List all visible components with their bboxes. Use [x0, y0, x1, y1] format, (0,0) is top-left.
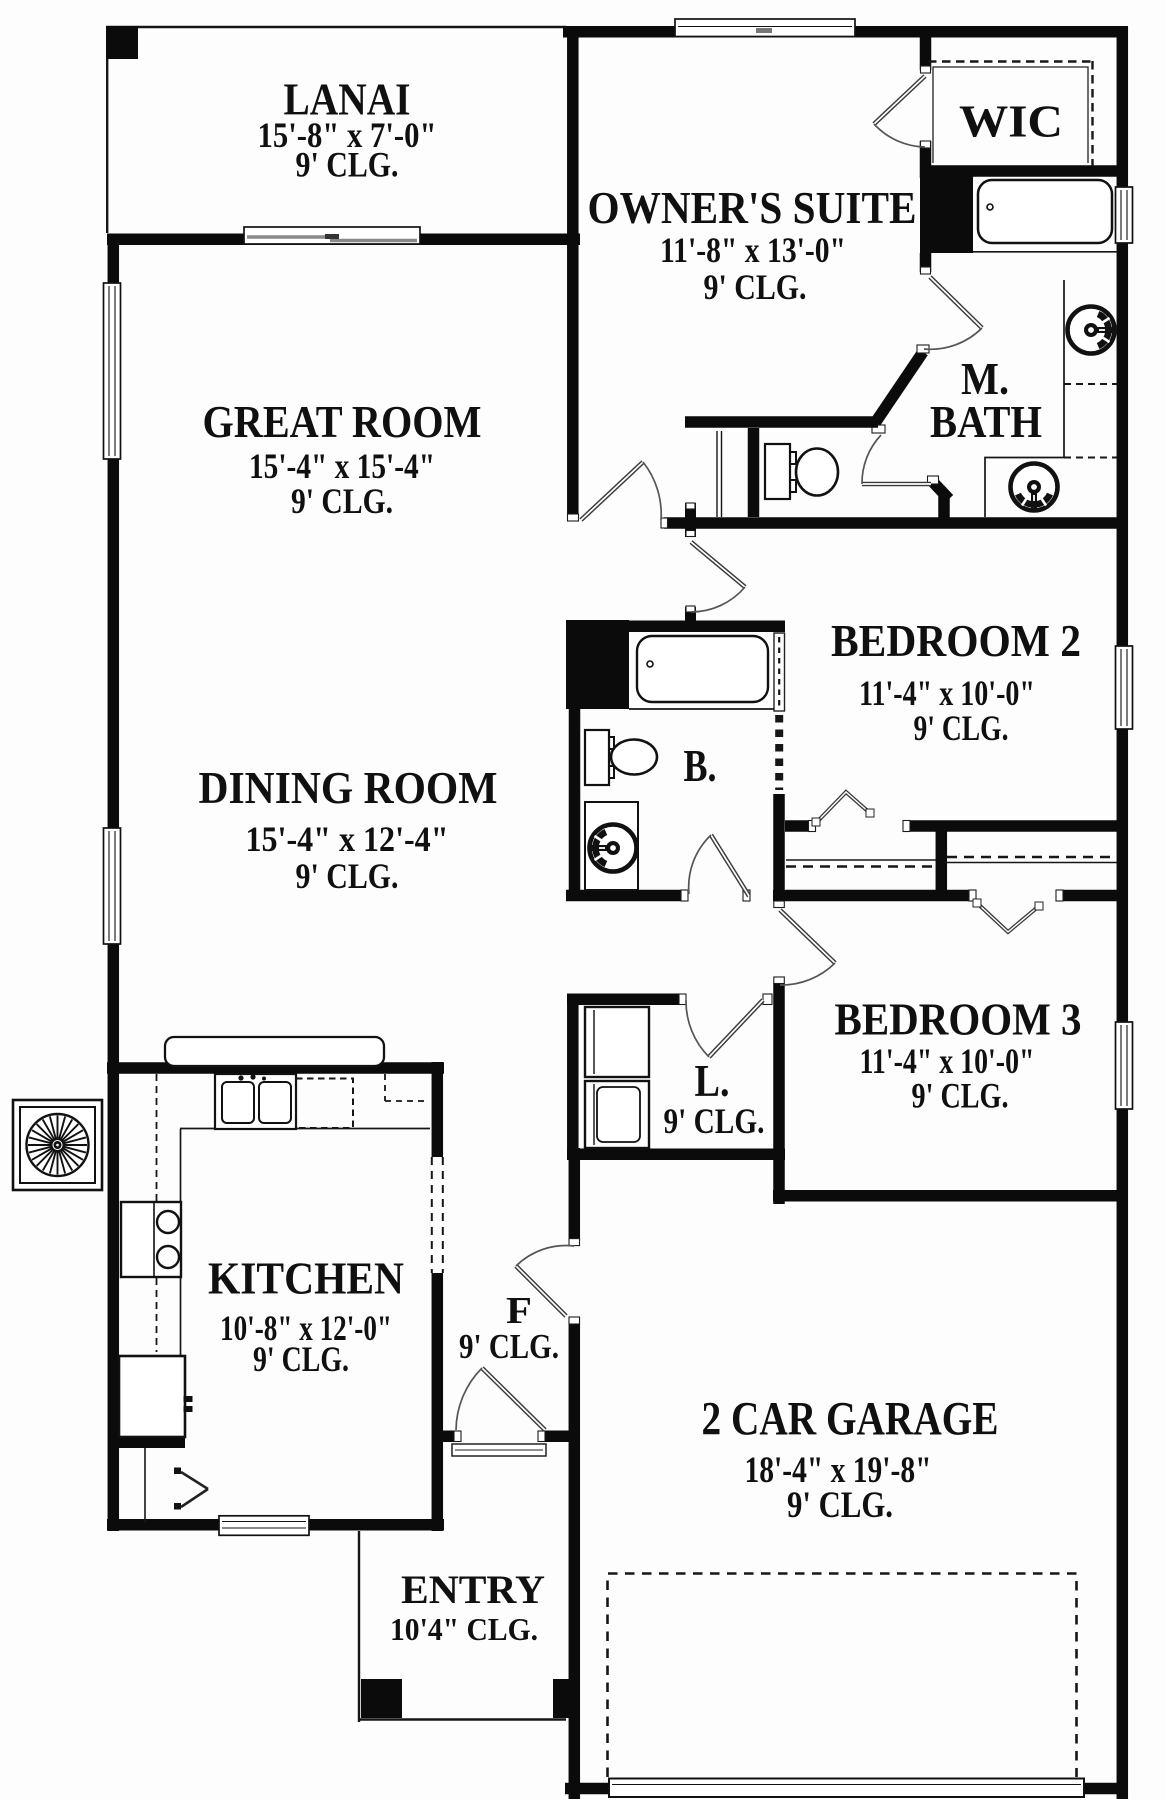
svg-text:9' CLG.: 9' CLG. — [914, 708, 1009, 748]
svg-text:BEDROOM 3: BEDROOM 3 — [835, 994, 1082, 1045]
svg-text:9' CLG.: 9' CLG. — [704, 267, 807, 307]
svg-text:9' CLG.: 9' CLG. — [787, 1485, 893, 1526]
svg-text:10'4" CLG.: 10'4" CLG. — [390, 1611, 538, 1647]
svg-text:9' CLG.: 9' CLG. — [664, 1101, 765, 1141]
svg-text:9' CLG.: 9' CLG. — [291, 481, 393, 521]
svg-text:15'-4" x 15'-4": 15'-4" x 15'-4" — [249, 446, 435, 486]
svg-text:DINING ROOM: DINING ROOM — [199, 762, 498, 813]
svg-text:B.: B. — [684, 740, 717, 791]
svg-text:BEDROOM 2: BEDROOM 2 — [831, 615, 1081, 666]
svg-text:KITCHEN: KITCHEN — [208, 1253, 404, 1304]
svg-text:2 CAR GARAGE: 2 CAR GARAGE — [702, 1393, 999, 1446]
svg-text:15'-4" x 12'-4": 15'-4" x 12'-4" — [246, 819, 449, 859]
svg-text:ENTRY: ENTRY — [401, 1567, 545, 1612]
svg-text:9' CLG.: 9' CLG. — [296, 856, 399, 896]
svg-text:GREAT ROOM: GREAT ROOM — [203, 396, 482, 447]
svg-text:WIC: WIC — [959, 96, 1063, 147]
svg-text:9' CLG.: 9' CLG. — [459, 1327, 559, 1366]
svg-text:11'-8" x 13'-0": 11'-8" x 13'-0" — [660, 230, 846, 270]
svg-text:9' CLG.: 9' CLG. — [253, 1339, 349, 1379]
svg-text:F: F — [506, 1290, 532, 1332]
svg-text:BATH: BATH — [930, 396, 1042, 447]
svg-text:9' CLG.: 9' CLG. — [296, 145, 399, 185]
svg-text:11'-4" x 10'-0": 11'-4" x 10'-0" — [859, 673, 1035, 713]
svg-text:L.: L. — [695, 1055, 730, 1106]
svg-text:OWNER'S SUITE: OWNER'S SUITE — [588, 182, 917, 233]
svg-text:9' CLG.: 9' CLG. — [912, 1076, 1009, 1116]
